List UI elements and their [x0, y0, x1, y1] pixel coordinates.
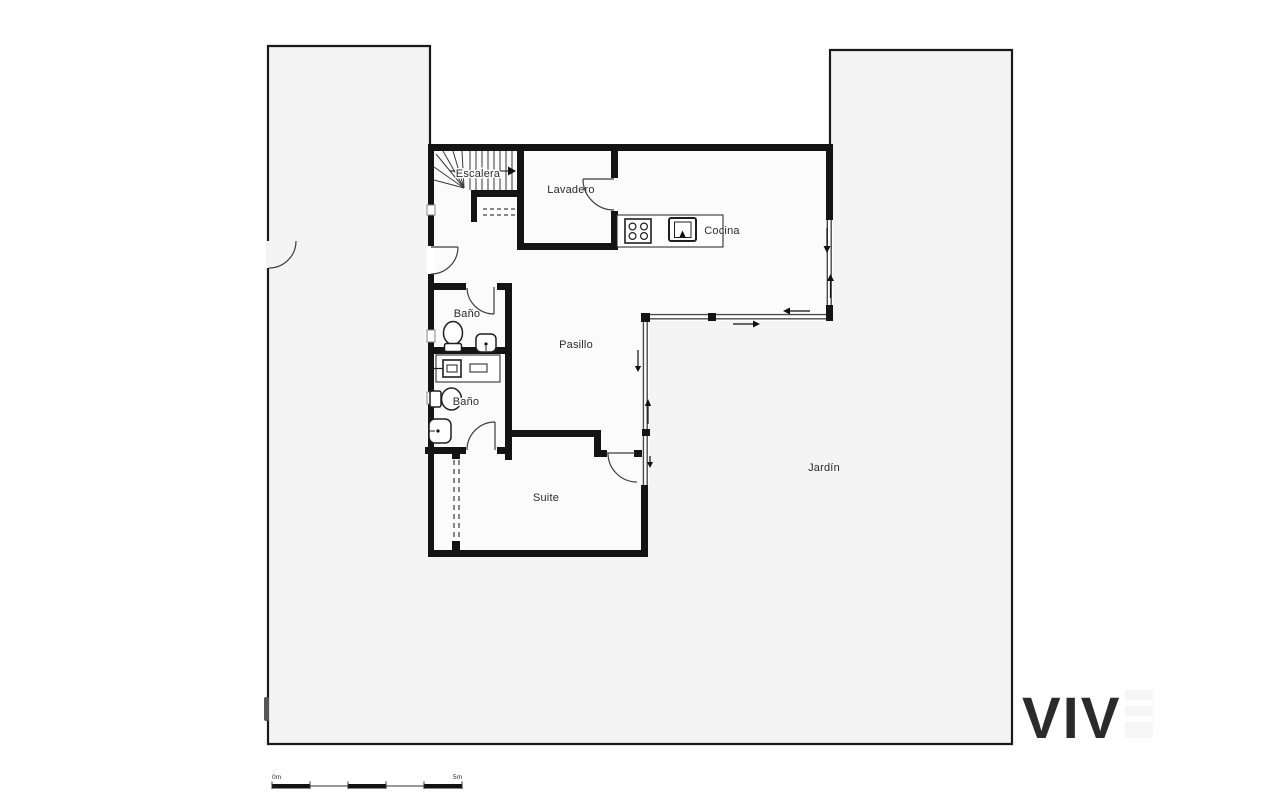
glazing-bottom-wall — [650, 313, 826, 321]
label-pasillo: Pasillo — [559, 339, 593, 351]
watermark: VIV — [1022, 686, 1153, 751]
window-hall — [427, 205, 435, 215]
svg-text:VIV: VIV — [1022, 686, 1122, 751]
label-jardin: Jardín — [808, 462, 840, 474]
stove-icon — [625, 219, 651, 243]
scale-end-label: 5m — [453, 774, 462, 781]
label-lavadero: Lavadero — [547, 184, 594, 196]
bidet-icon — [476, 334, 496, 352]
interior-left-column — [431, 283, 648, 555]
window-bath1 — [427, 330, 435, 342]
label-escalera: Escalera — [456, 168, 501, 180]
glazing-mullion — [708, 313, 716, 321]
floor-plan-drawing: Escalera Lavadero Cocina Baño Baño Pasil… — [0, 0, 1280, 800]
label-bano-bottom: Baño — [453, 396, 480, 408]
label-suite: Suite — [533, 492, 559, 504]
boundary-marker — [264, 697, 269, 721]
shower-bidet-icon — [429, 419, 451, 443]
floor-plan-page: Escalera Lavadero Cocina Baño Baño Pasil… — [0, 0, 1280, 800]
sink-icon — [669, 218, 696, 241]
scale-start-label: 0m — [272, 774, 281, 781]
scale-bar: 0m 5m — [272, 774, 462, 789]
toilet-icon — [444, 322, 463, 352]
vanity-mirror — [470, 364, 487, 372]
label-cocina: Cocina — [704, 225, 740, 237]
label-bano-top: Baño — [454, 308, 481, 320]
